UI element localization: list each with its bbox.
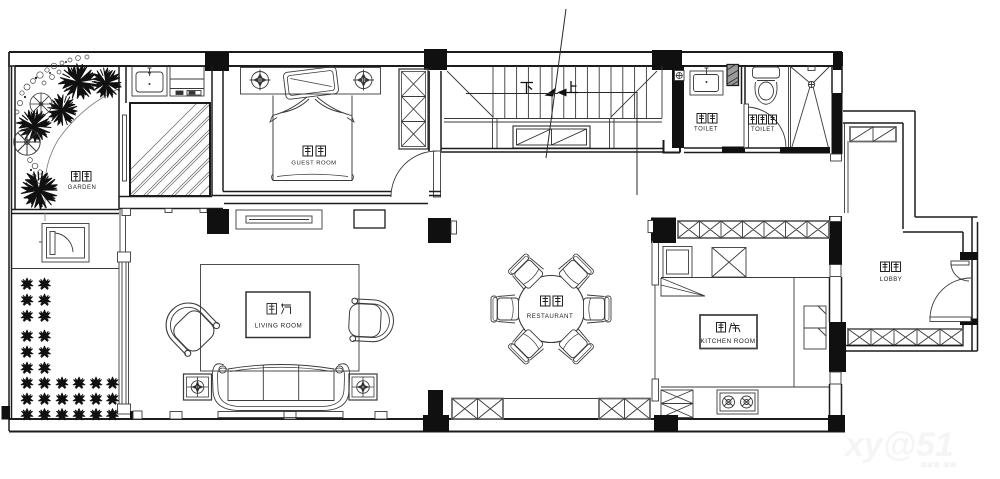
svg-text:GUEST ROOM: GUEST ROOM [291, 161, 336, 167]
svg-text:RESTAURANT: RESTAURANT [527, 313, 573, 320]
svg-text:GARDEN: GARDEN [68, 185, 97, 191]
svg-text:KITCHEN ROOM: KITCHEN ROOM [701, 338, 756, 345]
svg-text:LOBBY: LOBBY [880, 277, 903, 283]
svg-text:LIVING ROOM: LIVING ROOM [255, 323, 302, 330]
svg-text:TOILET: TOILET [751, 127, 775, 133]
svg-text:■■■ ■■: ■■■ ■■ [920, 459, 956, 471]
svg-text:TOILET: TOILET [694, 127, 718, 133]
